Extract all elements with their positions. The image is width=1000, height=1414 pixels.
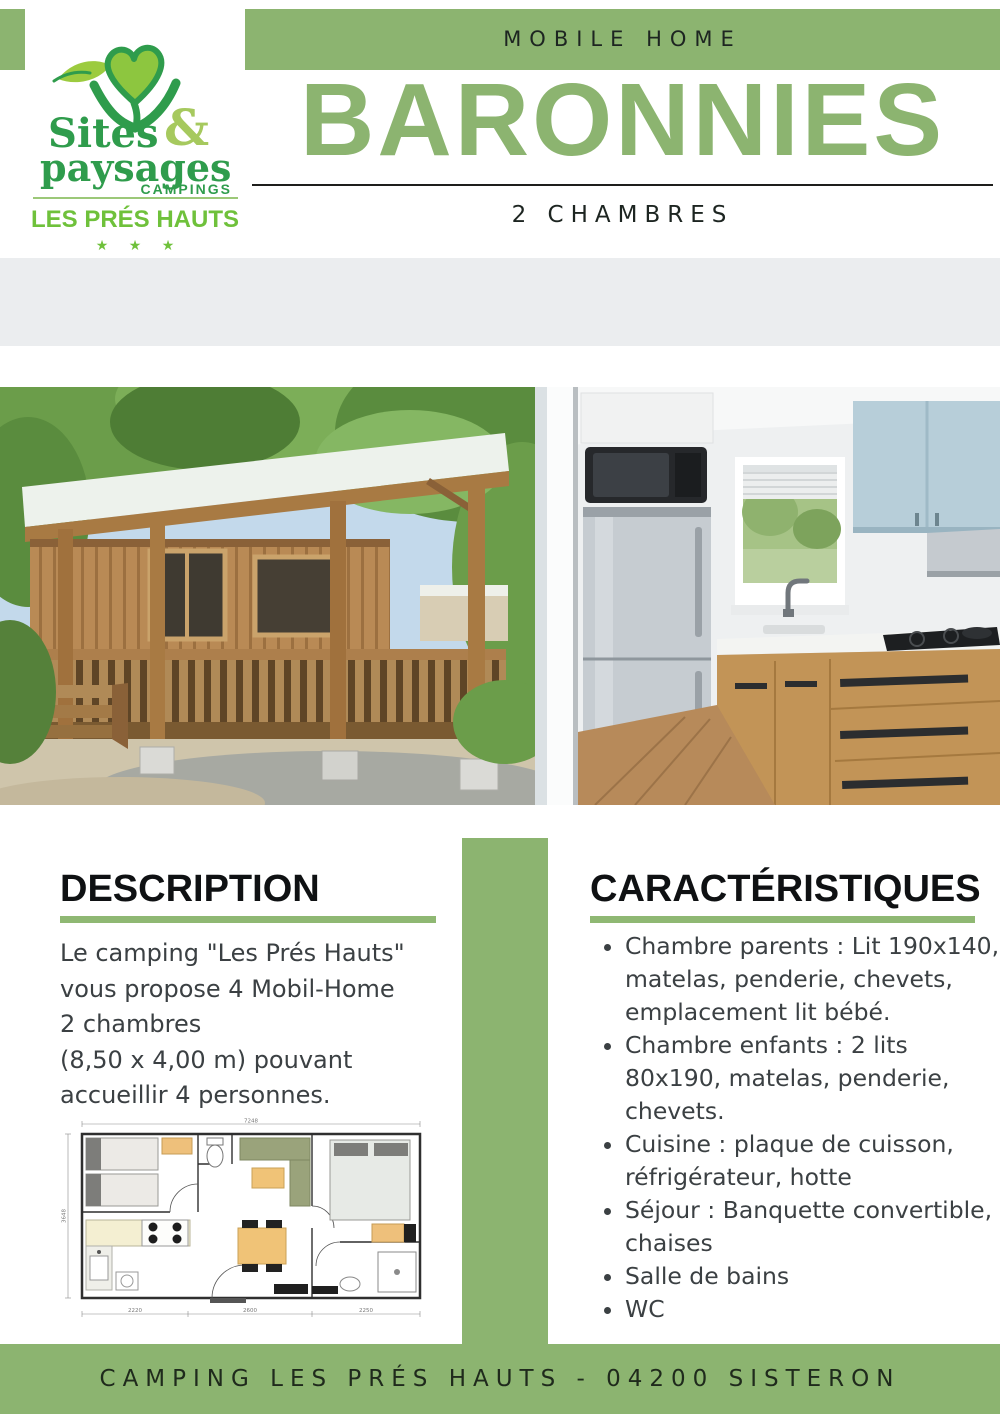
page-title: BARONNIES <box>250 66 995 174</box>
spec-band: m² 29 m2 4 personnes <box>0 258 1000 346</box>
campsite-name: LES PRÉS HAUTS <box>25 206 245 234</box>
description-line: vous propose 4 Mobil-Home <box>60 972 460 1008</box>
kitchen-photo <box>535 387 1000 805</box>
features-underline <box>590 916 975 923</box>
floorplan-dim-top: 7248 <box>244 1119 258 1125</box>
feature-item: Chambre parents : Lit 190x140, matelas, … <box>625 930 1000 1029</box>
description-line: 2 chambres <box>60 1007 460 1043</box>
floorplan-dim-bottom-1: 2220 <box>128 1308 142 1314</box>
feature-item: Chambre enfants : 2 lits 80x190, matelas… <box>625 1029 1000 1128</box>
description-line: Le camping "Les Prés Hauts" <box>60 936 460 972</box>
features-list: Chambre parents : Lit 190x140, matelas, … <box>595 930 1000 1326</box>
subtitle: 2 CHAMBRES <box>250 202 995 228</box>
category-label: MOBILE HOME <box>245 27 1000 51</box>
description-underline <box>60 916 436 923</box>
feature-item: Salle de bains <box>625 1260 1000 1293</box>
kitchen-photo-illustration <box>535 387 1000 805</box>
floorplan-dim-left: 3648 <box>62 1209 68 1223</box>
description-heading: DESCRIPTION <box>60 868 320 911</box>
logo-card: Sites & paysages CAMPINGS LES PRÉS HAUTS… <box>25 9 245 258</box>
features-heading: CARACTÉRISTIQUES <box>590 868 981 911</box>
center-divider <box>462 838 548 1345</box>
footer-band: CAMPING LES PRÉS HAUTS - 04200 SISTERON <box>0 1344 1000 1414</box>
floorplan-drawing: 7248 3648 2220 2600 2250 <box>60 1116 448 1324</box>
description-line: accueillir 4 personnes. <box>60 1078 460 1114</box>
feature-item: Séjour : Banquette convertible, chaises <box>625 1194 1000 1260</box>
floorplan: 7248 3648 2220 2600 2250 <box>60 1116 448 1324</box>
logo-divider <box>33 197 238 199</box>
logo-text-campings: CAMPINGS <box>141 181 232 195</box>
feature-item: WC <box>625 1293 1000 1326</box>
floorplan-dim-bottom-2: 2600 <box>243 1308 257 1314</box>
exterior-photo-illustration <box>0 387 535 805</box>
sites-paysages-logo: Sites & paysages CAMPINGS <box>30 15 240 195</box>
description-line: (8,50 x 4,00 m) pouvant <box>60 1043 460 1079</box>
footer-text: CAMPING LES PRÉS HAUTS - 04200 SISTERON <box>0 1344 1000 1414</box>
description-text: Le camping "Les Prés Hauts"vous propose … <box>60 936 460 1114</box>
brochure-page: MOBILE HOME Sites & paysages CAMPINGS LE… <box>0 0 1000 1414</box>
title-divider <box>252 184 993 186</box>
floorplan-dim-bottom-3: 2250 <box>359 1308 373 1314</box>
star-rating: ★ ★ ★ <box>25 238 245 254</box>
feature-item: Cuisine : plaque de cuisson, réfrigérate… <box>625 1128 1000 1194</box>
exterior-photo <box>0 387 535 805</box>
